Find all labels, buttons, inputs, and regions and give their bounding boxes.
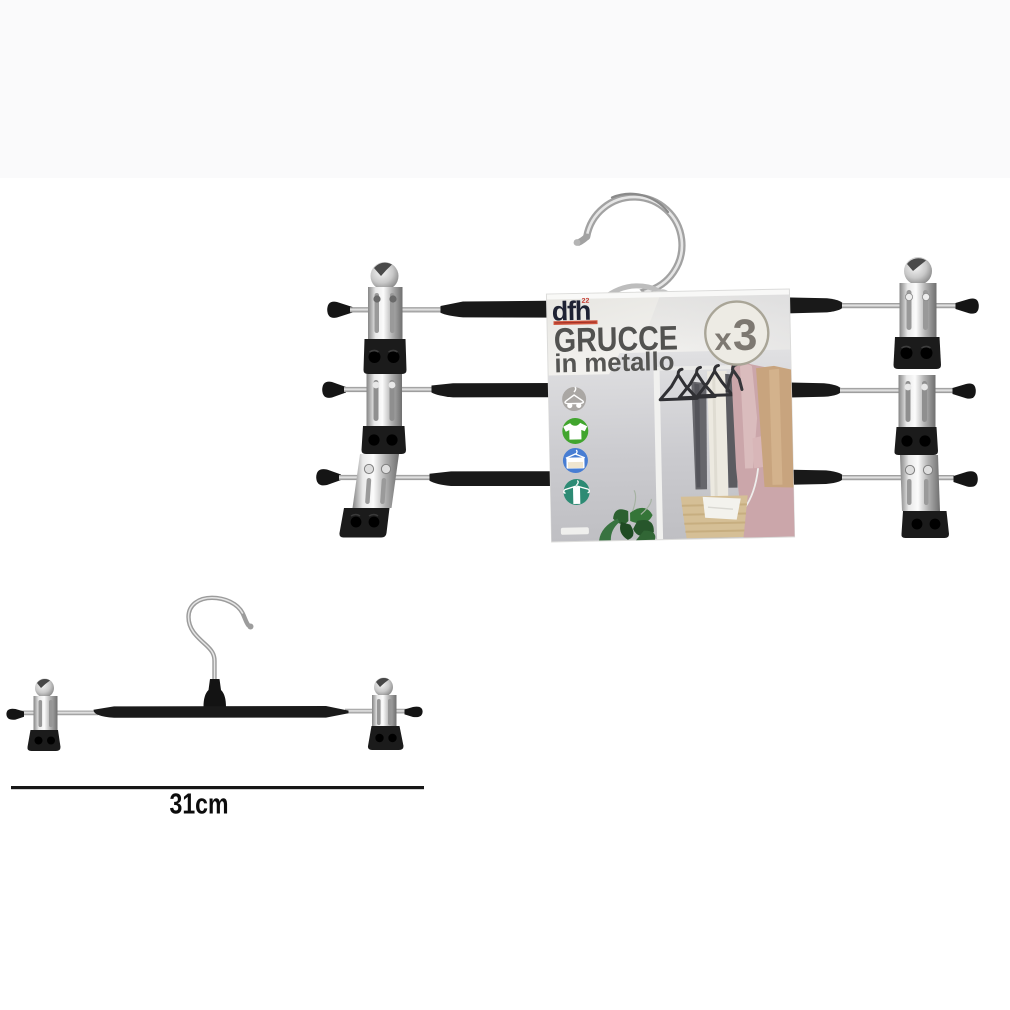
svg-text:22: 22: [582, 298, 590, 305]
svg-text:31cm: 31cm: [170, 789, 229, 821]
svg-text:in metallo: in metallo: [554, 346, 675, 379]
svg-text:3: 3: [732, 311, 758, 361]
svg-text:x: x: [714, 322, 733, 357]
